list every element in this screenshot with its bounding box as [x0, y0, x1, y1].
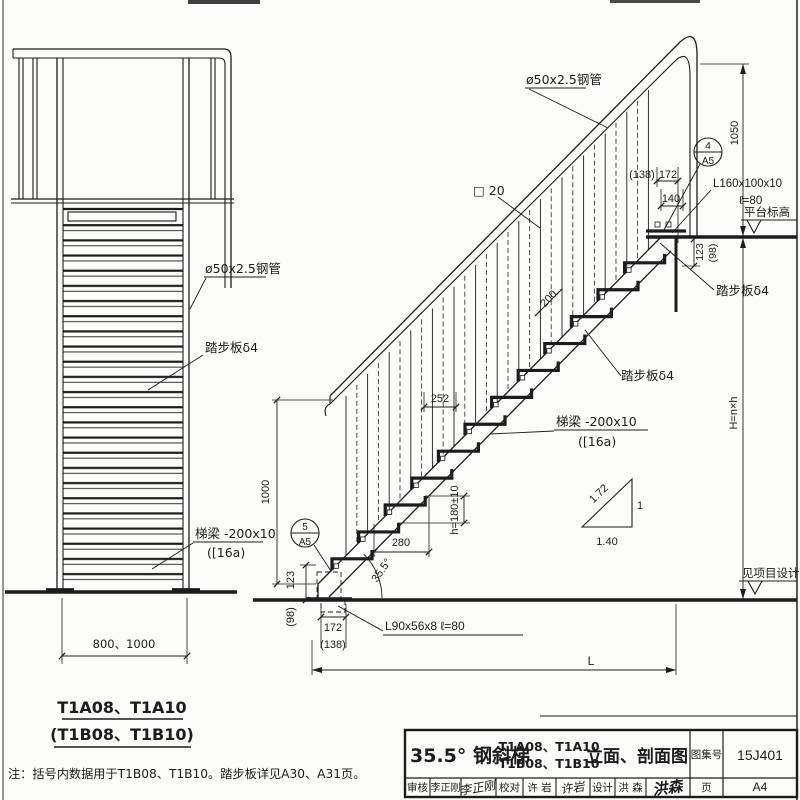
dim-H: H=n×h [728, 396, 740, 429]
dim-L: L [588, 654, 595, 668]
checker-label: 校对 [499, 781, 520, 794]
title-models-1: T1A08、T1A10 [498, 739, 599, 754]
atlas-number: 15J401 [737, 747, 783, 763]
dim-252: 252 [431, 393, 449, 405]
reviewer-name: 李正刚 [431, 781, 461, 794]
atlas-label: 图集号 [691, 748, 723, 761]
dim-123-top: 123 [694, 243, 706, 261]
dim-98-top: (98) [707, 244, 719, 263]
slope-rise: 1 [637, 500, 643, 512]
designer-label: 设计 [592, 781, 613, 794]
designer-name: 洪 森 [618, 781, 643, 794]
side-tread-mid-label: 踏步板δ4 [621, 368, 674, 383]
detail-callout-bottom-page: A5 [299, 537, 312, 548]
dim-h: h=180±10 [449, 485, 461, 534]
anchor-angle-label: L90x56x8 ℓ=80 [385, 619, 465, 633]
front-stringer-label-2: ([16a) [207, 545, 245, 560]
drawing-sheet: 800、1000 ø50x2.5钢管 踏步板δ4 梯梁 -200x10 ([16… [0, 0, 800, 800]
see-project-label: 见项目设计 [742, 566, 800, 580]
detail-callout-bottom-no: 5 [302, 522, 308, 533]
detail-callout-top-no: 4 [705, 141, 711, 152]
dim-1000: 1000 [260, 480, 272, 504]
dim-123-bottom: 123 [285, 571, 297, 589]
front-tread-label: 踏步板δ4 [205, 340, 258, 355]
slope-run: 1.40 [596, 536, 617, 548]
dim-140: 140 [662, 193, 680, 205]
front-width-dim: 800、1000 [93, 637, 156, 651]
front-caption-1: T1A08、T1A10 [57, 698, 186, 717]
side-stringer-label-2: ([16a) [578, 434, 616, 449]
conn-angle-label-1: L160x100x10 [713, 178, 782, 190]
checker-name: 许 岩 [527, 781, 551, 794]
dim-172-bottom: 172 [324, 622, 342, 634]
page-number: A4 [753, 780, 768, 794]
dim-200: 200 [538, 288, 559, 310]
dim-138-top: (138) [629, 169, 655, 181]
title-view-name: 立面、剖面图 [586, 746, 688, 767]
reviewer-label: 审核 [407, 781, 428, 794]
detail-callout-top-page: A5 [702, 156, 715, 167]
front-caption-2: (T1B08、T1B10) [50, 725, 194, 744]
dim-98-bottom: (98) [285, 607, 297, 627]
baluster-size-label: □ 20 [473, 183, 505, 198]
front-stringer-label-1: 梯梁 -200x10 [195, 526, 276, 541]
dim-280: 280 [392, 537, 410, 549]
front-rail-pipe-label: ø50x2.5钢管 [205, 261, 281, 276]
designer-signature: 洪森 [651, 777, 685, 799]
platform-level-label: 平台标高 [744, 205, 790, 219]
title-block: 35.5° 钢斜梯 T1A08、T1A10 T1B08、T1B10 立面、剖面图… [405, 730, 797, 799]
dim-1050: 1050 [729, 121, 741, 145]
reviewer-signature: 李正刚 [458, 778, 498, 798]
dim-138-bottom: (138) [320, 639, 346, 651]
side-stringer-label-1: 梯梁 -200x10 [556, 414, 637, 429]
side-rail-pipe-label: ø50x2.5钢管 [526, 72, 602, 87]
page-label: 页 [701, 782, 712, 794]
sheet-note: 注：括号内数据用于T1B08、T1B10。踏步板详见A30、A31页。 [8, 766, 365, 781]
dim-172-top: 172 [659, 169, 677, 181]
title-models-2: T1B08、T1B10 [499, 756, 600, 771]
checker-signature: 许岩 [560, 779, 587, 796]
drawing-canvas: 800、1000 ø50x2.5钢管 踏步板δ4 梯梁 -200x10 ([16… [0, 0, 800, 800]
front-view: 800、1000 ø50x2.5钢管 踏步板δ4 梯梁 -200x10 ([16… [5, 49, 281, 747]
dim-angle: 35.5° [370, 557, 395, 585]
